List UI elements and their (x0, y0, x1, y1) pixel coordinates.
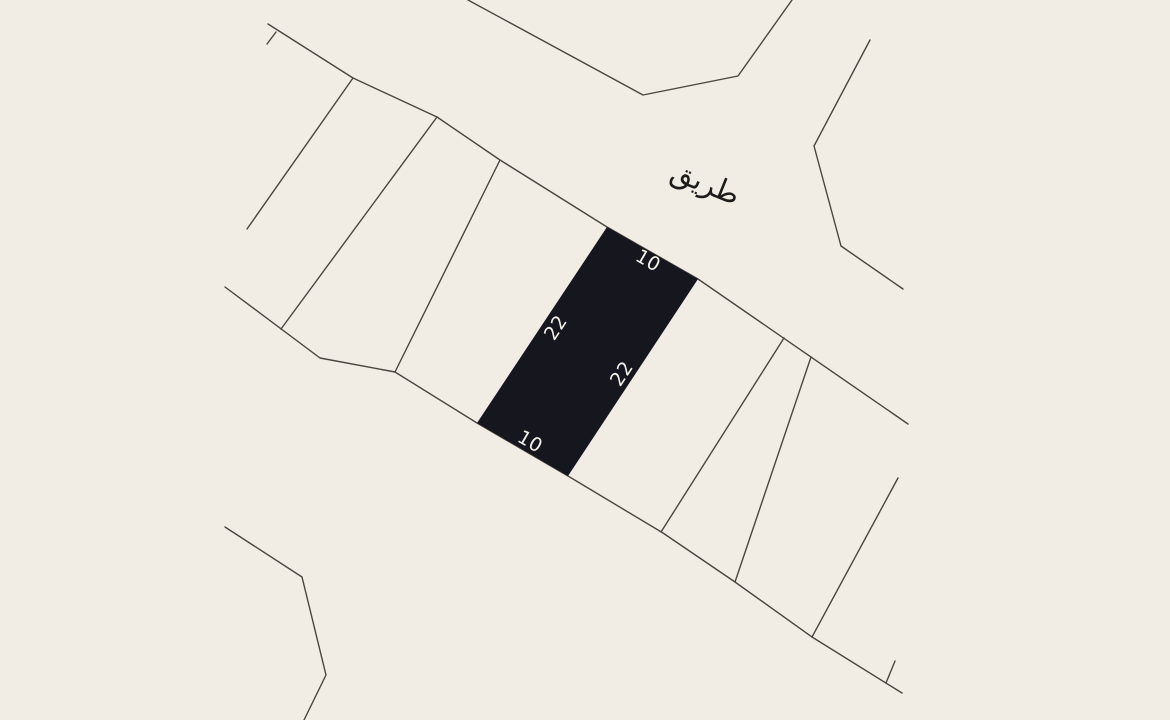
plat-map: 10 22 22 10 طريق (0, 0, 1170, 720)
plat-map-canvas: 10 22 22 10 طريق (0, 0, 1170, 720)
